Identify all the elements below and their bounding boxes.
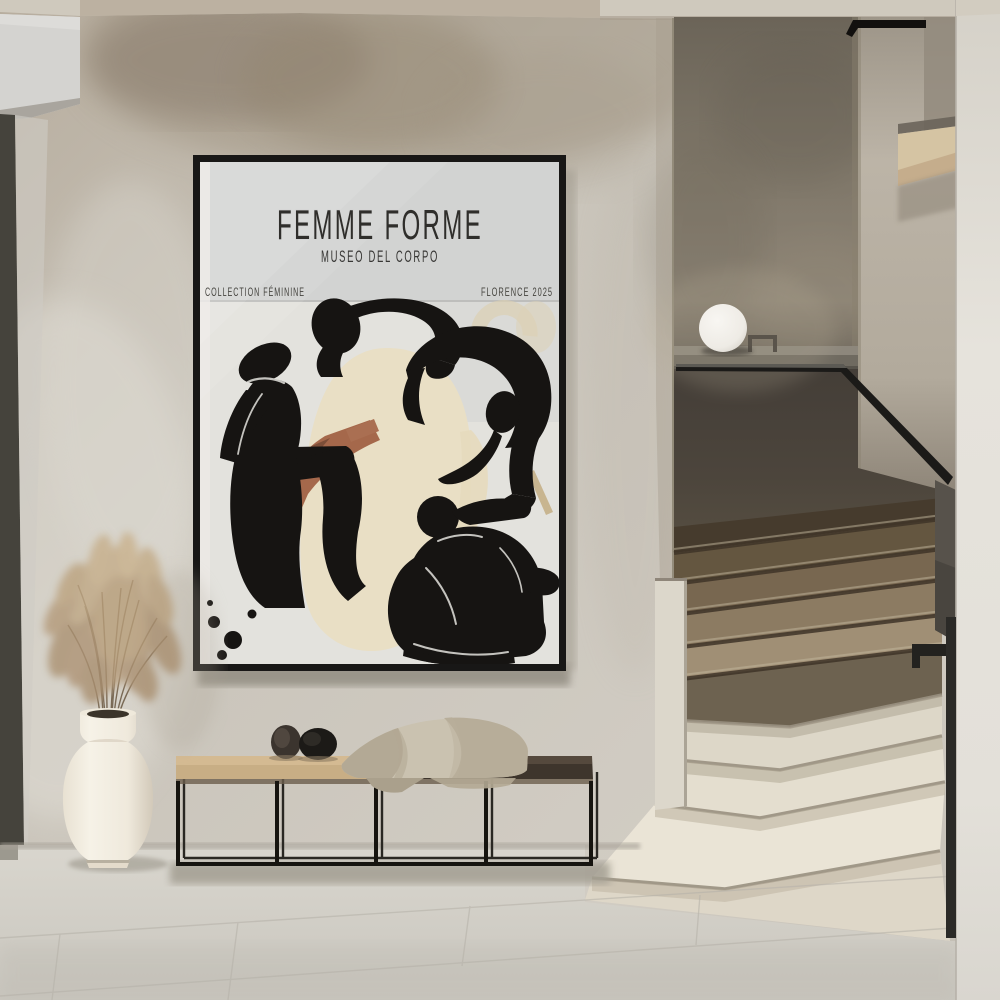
svg-text:FEMME FORME: FEMME FORME — [277, 201, 483, 248]
svg-text:MUSEO DEL CORPO: MUSEO DEL CORPO — [321, 247, 439, 266]
svg-text:COLLECTION FÉMININE: COLLECTION FÉMININE — [205, 284, 305, 299]
svg-text:FLORENCE 2025: FLORENCE 2025 — [481, 285, 553, 299]
